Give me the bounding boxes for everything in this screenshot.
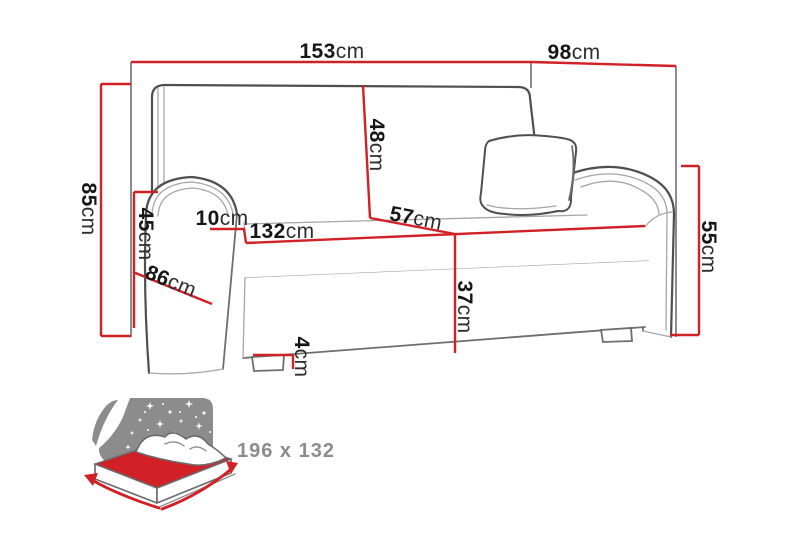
dim-label-overall-depth: 98cm [548,41,601,64]
dim-label-overall-height: 85cm [78,183,101,236]
dim-label-armrest-height: 45cm [135,208,158,261]
dim-label-backrest-height: 48cm [366,119,389,172]
bed-size-label: 196 x 132 [237,440,335,462]
pillow [480,135,576,215]
diagram-canvas: 153cm 98cm 85cm 45cm 10cm 132cm 86cm 48c… [0,0,800,533]
dim-label-seat-height: 37cm [454,281,477,334]
dim-label-leg-height: 4cm [291,337,314,378]
dim-label-right-arm-height: 55cm [698,221,721,274]
dim-line-right-arm-height [670,166,699,335]
dim-label-seat-width: 132cm [249,220,314,243]
dim-label-armrest-width: 10cm [196,207,249,230]
dim-label-overall-width: 153cm [299,40,364,63]
bed-icon [84,398,238,509]
sofa-dimension-diagram: 153cm 98cm 85cm 45cm 10cm 132cm 86cm 48c… [0,0,800,533]
dim-line-overall-height [101,84,131,336]
